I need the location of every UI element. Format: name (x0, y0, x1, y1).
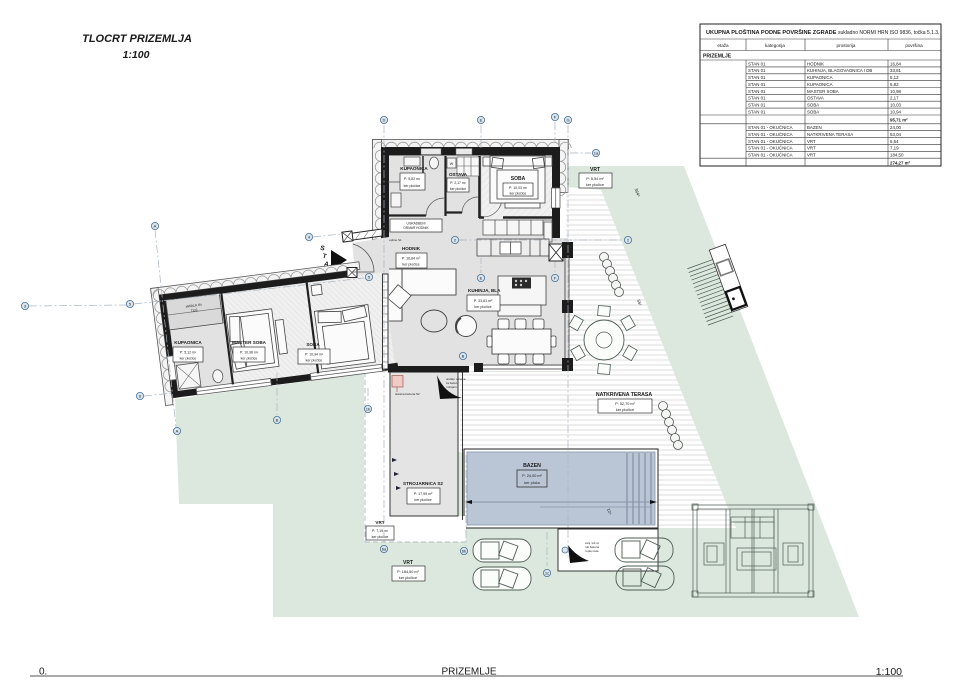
svg-text:STAN 01: STAN 01 (748, 96, 766, 101)
svg-text:VRT: VRT (375, 520, 384, 525)
svg-text:VRT: VRT (807, 153, 816, 158)
svg-text:i strojarn.: i strojarn. (446, 385, 458, 389)
svg-text:površina: površina (905, 43, 923, 48)
svg-text:STAN 01: STAN 01 (748, 103, 766, 108)
svg-text:P: 10,03 m²: P: 10,03 m² (509, 186, 528, 190)
svg-text:184,50: 184,50 (890, 153, 904, 158)
svg-text:PRIZEMLJE: PRIZEMLJE (703, 54, 732, 60)
svg-text:STAN 01: STAN 01 (748, 68, 766, 73)
svg-text:D: D (383, 118, 386, 123)
svg-text:STAN 01: STAN 01 (748, 61, 766, 66)
svg-text:P: 10,94 m²: P: 10,94 m² (305, 353, 324, 357)
svg-text:stanica bazena S2: stanica bazena S2 (395, 392, 420, 396)
svg-text:KUPAONICA: KUPAONICA (400, 166, 428, 171)
svg-text:UGRADBENI: UGRADBENI (407, 222, 426, 226)
svg-text:P: 17,99 m²: P: 17,99 m² (414, 492, 433, 496)
svg-text:TLOCRT PRIZEMLJA: TLOCRT PRIZEMLJA (82, 33, 192, 45)
svg-text:P: 24,00 m²: P: 24,00 m² (522, 474, 542, 478)
svg-text:kategorija: kategorija (765, 43, 785, 48)
svg-text:ker pločice: ker pločice (180, 357, 197, 361)
svg-text:1a: 1a (594, 151, 599, 156)
svg-text:STAN 01 - OKUĆNICA: STAN 01 - OKUĆNICA (748, 132, 793, 137)
svg-text:KUPAONICA: KUPAONICA (174, 340, 202, 345)
svg-text:1c: 1c (545, 571, 549, 576)
svg-text:VRT: VRT (590, 167, 600, 173)
svg-text:0.: 0. (39, 667, 47, 678)
svg-text:P: 5,12 m²: P: 5,12 m² (180, 351, 197, 355)
svg-text:10,98: 10,98 (890, 89, 902, 94)
svg-text:KUHINJA, BLA: KUHINJA, BLA (468, 288, 501, 293)
svg-text:P: 5,54 m²: P: 5,54 m² (586, 177, 604, 181)
svg-text:P: 184,50 m²: P: 184,50 m² (397, 570, 419, 574)
svg-text:KUPAONICA: KUPAONICA (807, 75, 833, 80)
svg-text:ker pločice: ker pločice (306, 359, 323, 363)
svg-text:95,71 m²: 95,71 m² (890, 118, 908, 123)
svg-text:STAN 01: STAN 01 (748, 109, 766, 114)
svg-text:W: W (450, 162, 454, 166)
svg-text:BAZEN: BAZEN (523, 463, 541, 469)
svg-text:B: B (276, 418, 279, 423)
svg-text:NATKRIVENA TERASA: NATKRIVENA TERASA (807, 132, 853, 137)
svg-text:33,81: 33,81 (890, 68, 902, 73)
svg-text:prostorija: prostorija (837, 43, 856, 48)
svg-text:1b: 1b (366, 407, 371, 412)
svg-text:1:100: 1:100 (876, 666, 902, 678)
svg-text:24,00: 24,00 (890, 125, 902, 130)
svg-text:STAN 01 - OKUĆNICA: STAN 01 - OKUĆNICA (748, 153, 793, 158)
svg-text:STAN 01 - OKUĆNICA: STAN 01 - OKUĆNICA (748, 125, 793, 130)
svg-text:P: 7,19 m²: P: 7,19 m² (372, 529, 389, 533)
svg-text:SOBA: SOBA (511, 176, 526, 182)
svg-text:6a: 6a (382, 547, 387, 552)
svg-text:SOBA: SOBA (807, 103, 819, 108)
svg-text:STAN 01: STAN 01 (748, 75, 766, 80)
svg-text:5,54: 5,54 (890, 139, 899, 144)
svg-text:P: 5,82 m²: P: 5,82 m² (404, 177, 421, 181)
svg-text:ker ploča: ker ploča (524, 481, 540, 485)
svg-text:G: G (566, 118, 569, 123)
svg-text:STAN 01: STAN 01 (748, 89, 766, 94)
svg-text:10,94: 10,94 (890, 109, 902, 114)
svg-text:274,27 m²: 274,27 m² (890, 161, 911, 166)
svg-text:16,84: 16,84 (890, 61, 902, 66)
svg-text:ker pločice: ker pločice (399, 576, 417, 580)
svg-text:ker pločice: ker pločice (241, 357, 258, 361)
svg-text:ker pločice: ker pločice (450, 187, 466, 191)
svg-text:MASTER SOBA: MASTER SOBA (232, 340, 267, 345)
svg-text:OSTAVA: OSTAVA (449, 172, 468, 177)
svg-text:SOBA: SOBA (807, 109, 819, 114)
svg-text:5,12: 5,12 (890, 75, 899, 80)
svg-text:KUPAONICA: KUPAONICA (807, 82, 833, 87)
svg-text:7,19: 7,19 (890, 146, 899, 151)
svg-text:A: A (154, 224, 157, 229)
svg-text:UKUPNA PLOŠTINA PODNE POVRŠINE: UKUPNA PLOŠTINA PODNE POVRŠINE ZGRADE su… (706, 28, 939, 36)
svg-text:STAN 01 - OKUĆNICA: STAN 01 - OKUĆNICA (748, 146, 793, 151)
svg-text:P: 16,84 m²: P: 16,84 m² (402, 257, 421, 261)
svg-text:BAZEN: BAZEN (807, 125, 822, 130)
svg-text:etaža: etaža (717, 43, 729, 48)
svg-text:VRT: VRT (403, 560, 413, 566)
svg-text:ker pločice: ker pločice (404, 184, 421, 188)
svg-text:E: E (480, 276, 483, 281)
svg-text:HODNIK: HODNIK (402, 246, 421, 251)
svg-text:A: A (176, 429, 179, 434)
svg-text:PRIZEMLJE: PRIZEMLJE (441, 667, 496, 678)
svg-text:E: E (480, 118, 483, 123)
svg-text:STAN 01 - OKUĆNICA: STAN 01 - OKUĆNICA (748, 139, 793, 144)
svg-text:53,04: 53,04 (890, 132, 902, 137)
svg-text:ker pločice: ker pločice (402, 263, 419, 267)
svg-text:MASTER SOBA: MASTER SOBA (807, 89, 839, 94)
svg-text:SOBA: SOBA (306, 342, 320, 347)
svg-text:ker pločice: ker pločice (510, 192, 527, 196)
svg-text:6b: 6b (462, 549, 467, 554)
svg-text:ker pločice: ker pločice (372, 535, 389, 539)
svg-text:KUHINJA, BLAGOVAONICA I DB: KUHINJA, BLAGOVAONICA I DB (807, 68, 872, 73)
svg-text:P: 52,70 m²: P: 52,70 m² (615, 402, 635, 406)
svg-text:OSTAVA: OSTAVA (807, 96, 824, 101)
svg-text:P: 2,17 m²: P: 2,17 m² (450, 181, 467, 185)
svg-text:2,17: 2,17 (890, 96, 899, 101)
svg-text:topla voda: topla voda (586, 549, 599, 553)
svg-text:VRT: VRT (807, 146, 816, 151)
svg-text:ker pločice: ker pločice (414, 498, 431, 502)
svg-text:VRT: VRT (807, 139, 816, 144)
svg-text:ker pločice: ker pločice (616, 408, 634, 412)
svg-text:P: 33,81 m²: P: 33,81 m² (474, 299, 493, 303)
svg-text:HODNIK: HODNIK (807, 61, 824, 66)
svg-text:B: B (462, 354, 465, 359)
svg-text:10,03: 10,03 (890, 103, 902, 108)
svg-text:ker pločice: ker pločice (586, 183, 604, 187)
svg-text:STROJARNICA S2: STROJARNICA S2 (403, 481, 443, 486)
svg-text:ker pločice: ker pločice (474, 305, 491, 309)
svg-text:NATKRIVENA TERASA: NATKRIVENA TERASA (596, 392, 652, 398)
svg-text:STAN 01: STAN 01 (748, 82, 766, 87)
svg-text:ORMAR HODNIK: ORMAR HODNIK (403, 226, 429, 230)
svg-text:1:100: 1:100 (123, 49, 150, 61)
svg-text:5,82: 5,82 (890, 82, 899, 87)
svg-text:P: 10,98 m²: P: 10,98 m² (240, 351, 259, 355)
